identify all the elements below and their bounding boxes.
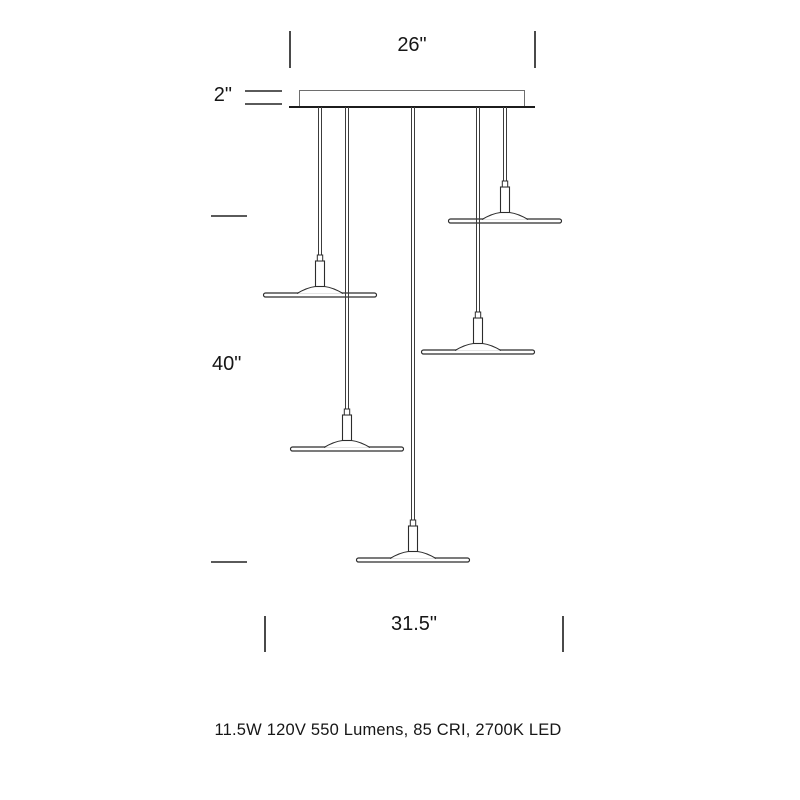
pendant-disc <box>449 219 562 223</box>
pendant-lamp <box>289 408 405 452</box>
pendant-cord <box>318 107 322 256</box>
pendant-lamp <box>420 311 536 355</box>
pendant-dome <box>455 344 501 351</box>
pendant-cord <box>503 107 507 182</box>
pendant-stem <box>409 526 418 552</box>
pendant-disc <box>264 293 377 297</box>
pendant-disc <box>422 350 535 354</box>
spec-text: 11.5W 120V 550 Lumens, 85 CRI, 2700K LED <box>0 721 776 740</box>
dim-label-canopy-height: 2" <box>196 84 232 106</box>
pendant-cord <box>411 107 415 521</box>
pendant-lamp <box>447 180 563 224</box>
pendant-stem <box>316 261 325 287</box>
pendant-stem <box>501 187 510 213</box>
pendant-dome <box>297 287 343 294</box>
dim-2-top-tick <box>245 90 282 92</box>
pendant-neck <box>317 255 322 261</box>
pendant-cord <box>476 107 480 313</box>
pendant-neck <box>344 409 349 415</box>
pendant-stem <box>474 318 483 344</box>
pendant-disc <box>357 558 470 562</box>
dim-40-top-tick <box>211 215 247 217</box>
pendant-neck <box>475 312 480 318</box>
pendant-lamp <box>355 519 471 563</box>
pendant-dome <box>390 552 436 559</box>
dim-label-canopy-width: 26" <box>289 34 535 56</box>
pendant-dome <box>324 441 370 448</box>
canopy-plate <box>299 90 525 106</box>
dimension-drawing-page: { "drawing": { "kind": "multi-pendant li… <box>0 0 800 800</box>
pendant-neck <box>502 181 507 187</box>
dim-40-bottom-tick <box>211 561 247 563</box>
dim-label-drop-height: 40" <box>212 353 241 375</box>
pendant-neck <box>410 520 415 526</box>
pendant-cord <box>345 107 349 410</box>
pendant-dome <box>482 213 528 220</box>
dim-label-spread-width: 31.5" <box>264 613 564 635</box>
pendant-disc <box>291 447 404 451</box>
dim-2-bottom-tick <box>245 103 282 105</box>
pendant-stem <box>343 415 352 441</box>
pendant-lamp <box>262 254 378 298</box>
